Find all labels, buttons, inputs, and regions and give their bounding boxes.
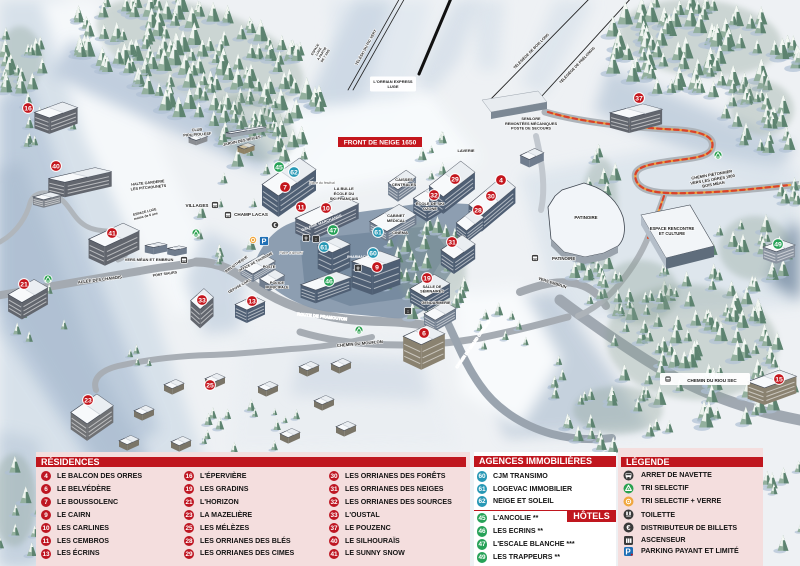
svg-text:23: 23 [84,397,92,404]
svg-text:28: 28 [474,207,482,214]
svg-text:46: 46 [325,278,333,285]
svg-text:60: 60 [369,250,377,257]
svg-text:9: 9 [375,264,379,271]
svg-text:CHEMIN DU RIOU SEC: CHEMIN DU RIOU SEC [687,378,737,383]
svg-text:33: 33 [198,297,206,304]
svg-text:POSTE: POSTE [263,265,276,269]
svg-text:19: 19 [423,275,431,282]
svg-text:GENDARMERIE: GENDARMERIE [421,300,451,305]
svg-text:29: 29 [451,176,459,183]
svg-text:SKI FRANÇAIS: SKI FRANÇAIS [330,196,359,201]
svg-text:11: 11 [297,204,304,211]
svg-text:ET CULTURE: ET CULTURE [659,231,685,236]
svg-text:CINÉMA: CINÉMA [392,230,408,235]
svg-text:15: 15 [775,376,783,383]
svg-text:61: 61 [320,244,328,251]
svg-text:7: 7 [283,184,287,191]
svg-text:25: 25 [206,382,214,389]
svg-text:VILLAGES: VILLAGES [186,203,209,208]
svg-text:CENTRALES: CENTRALES [392,182,417,187]
svg-text:P: P [625,547,631,556]
svg-text:P: P [261,237,266,246]
svg-text:LUGE: LUGE [387,84,398,89]
svg-text:21: 21 [20,281,28,288]
svg-text:62: 62 [290,169,298,176]
svg-text:16: 16 [24,105,32,112]
svg-text:PATINOIRE: PATINOIRE [574,215,597,220]
svg-text:€: € [273,223,276,229]
svg-text:41: 41 [108,230,116,237]
svg-text:MÉDICAL: MÉDICAL [387,218,406,223]
svg-text:49: 49 [774,241,782,248]
svg-text:VERS MÉAN ET EMBRUN: VERS MÉAN ET EMBRUN [125,257,174,262]
svg-text:10: 10 [322,205,330,212]
svg-text:SÉMINAIRES: SÉMINAIRES [420,289,444,294]
svg-text:CHAMP LACAS: CHAMP LACAS [234,212,268,217]
svg-text:32: 32 [430,192,438,199]
svg-text:4: 4 [499,177,503,184]
svg-text:Place du festival: Place du festival [309,181,335,185]
svg-text:37: 37 [635,95,643,102]
svg-text:↕: ↕ [315,237,318,243]
svg-text:13: 13 [248,298,256,305]
svg-text:FRONT DE NEIGE 1650: FRONT DE NEIGE 1650 [344,140,417,147]
svg-text:↕: ↕ [407,309,410,315]
svg-text:PATINOIRE: PATINOIRE [552,256,575,261]
svg-text:LAVERIE: LAVERIE [457,148,474,153]
svg-text:PHARMACIE: PHARMACIE [347,255,369,259]
svg-text:45: 45 [275,164,283,171]
svg-text:61: 61 [374,229,382,236]
svg-text:Place d'accueil: Place d'accueil [279,251,302,255]
svg-text:POSTE DE SECOURS: POSTE DE SECOURS [511,126,551,131]
svg-text:6: 6 [422,330,426,337]
svg-text:30: 30 [487,193,495,200]
svg-text:OZONE: OZONE [423,206,438,211]
svg-text:POLICE: POLICE [270,281,285,285]
svg-text:40: 40 [52,163,60,170]
svg-text:SALLE DE: SALLE DE [423,285,442,289]
svg-text:47: 47 [329,227,337,234]
svg-text:MUNICIPALE: MUNICIPALE [265,286,289,290]
svg-text:31: 31 [448,239,456,246]
